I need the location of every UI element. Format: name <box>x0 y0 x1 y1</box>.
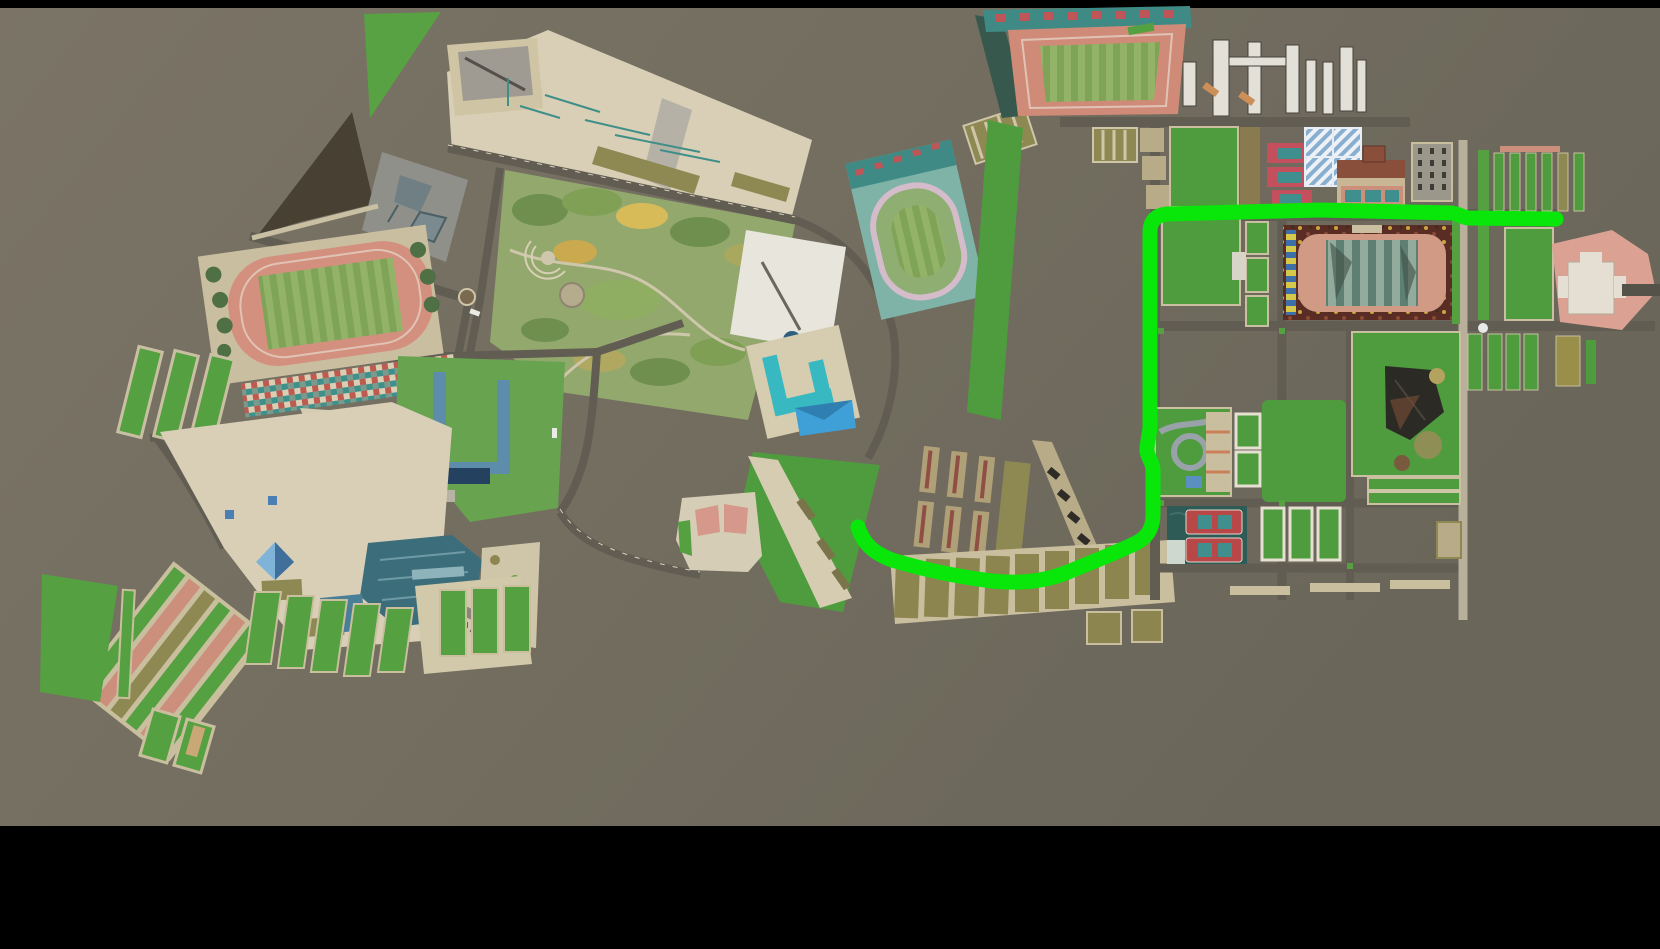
shore-pale <box>1167 540 1185 564</box>
court-white-border <box>1318 508 1340 560</box>
lawn-strip-se <box>1506 334 1520 390</box>
lawn-strip-se <box>1488 334 1502 390</box>
tan-block <box>1142 156 1166 180</box>
park-amphitheater <box>541 251 555 265</box>
arch-building-pillar <box>497 380 510 472</box>
park-canopy <box>562 188 622 216</box>
red-court-key <box>1218 543 1232 557</box>
shrub-dot <box>1279 500 1285 506</box>
lawn-small <box>1246 296 1268 326</box>
stadium-north-field <box>1040 42 1160 102</box>
great-lawn-east <box>1262 400 1346 502</box>
hall-front-court-teal <box>1365 190 1381 202</box>
plaza-vent <box>225 510 234 519</box>
field-plot <box>472 588 498 654</box>
field-plot <box>440 590 466 656</box>
tan-block <box>1146 185 1170 209</box>
round-tree <box>1414 431 1442 459</box>
lawn-strip-se <box>1468 334 1482 390</box>
garden-shrub <box>490 555 500 565</box>
hedge-column <box>1478 150 1489 320</box>
garden-grid-ne <box>1494 153 1504 211</box>
garden-plaza-pond <box>1186 476 1202 488</box>
basketball-inner <box>1277 172 1301 183</box>
garden-plot-low <box>1132 610 1162 642</box>
dorm-slab <box>1306 60 1316 112</box>
red-court <box>1186 510 1242 534</box>
park-canopy <box>553 240 597 264</box>
white-car <box>552 428 557 438</box>
garden-row <box>954 558 980 617</box>
dorm-slab <box>1213 40 1229 116</box>
garden-grid-ne <box>1542 153 1552 211</box>
plaza-vent <box>268 496 277 505</box>
gate-building <box>1568 262 1614 314</box>
gateball-green <box>678 520 692 556</box>
park-canopy <box>521 318 569 342</box>
garden-grid-ne <box>1558 153 1568 211</box>
stadium-east-checker <box>1286 230 1296 315</box>
basketball-inner <box>1280 194 1302 203</box>
gateball-pad-pink <box>695 505 720 536</box>
dorm-slab <box>1183 62 1196 106</box>
round-tree <box>1394 455 1410 471</box>
red-court <box>1186 538 1242 562</box>
dorm-slab <box>1340 47 1353 111</box>
dorm-slab <box>1323 62 1333 114</box>
lawn-block <box>1162 215 1240 305</box>
park-canopy <box>630 358 690 386</box>
brown-roof-chimney <box>1363 146 1385 162</box>
garden-accent-salmon <box>1500 146 1560 152</box>
shrub-dot <box>1158 328 1164 334</box>
field-plot <box>504 586 530 652</box>
sidewalk-strip <box>1310 583 1380 592</box>
tan-block-south <box>1437 522 1461 558</box>
park-canopy <box>616 203 668 229</box>
gate-building-tab <box>1580 252 1602 264</box>
gate-road-slot <box>1622 284 1660 296</box>
shrub-dot <box>1347 563 1353 569</box>
red-court-key <box>1198 543 1212 557</box>
intersection-sphere <box>1478 323 1488 333</box>
garden-grid-ne <box>1574 153 1584 211</box>
brown-roof-band <box>1337 160 1405 178</box>
lawn-strip-se <box>1524 334 1538 390</box>
map-viewport[interactable] <box>0 0 1660 949</box>
park-mound <box>560 283 584 307</box>
dorm-bridge <box>1229 57 1286 66</box>
garden-plot-low <box>1087 612 1121 644</box>
gate-lawn-west <box>1505 228 1553 320</box>
hall-front-court-teal <box>1345 190 1361 202</box>
round-tree <box>1429 368 1445 384</box>
park-canopy <box>690 338 746 366</box>
court-white-border <box>1236 414 1260 448</box>
lawn-strip-se <box>1586 340 1596 384</box>
court-white-border <box>1290 508 1312 560</box>
game-viewport <box>0 0 1660 949</box>
sidewalk-strip <box>1230 586 1290 595</box>
court-white-border <box>1262 508 1284 560</box>
red-court-key <box>1198 515 1212 529</box>
gate-building-wing <box>1558 276 1568 298</box>
field-east-dirt <box>1240 127 1260 207</box>
court-white-border <box>1236 452 1260 486</box>
dorm-slab <box>1357 60 1366 112</box>
dorm-slab <box>1286 45 1299 113</box>
shrub-dot <box>1279 328 1285 334</box>
lawn-small <box>1246 258 1268 292</box>
lawn-connector <box>1232 252 1246 280</box>
garden-grid-ne <box>1526 153 1536 211</box>
lawn-small <box>1246 222 1268 254</box>
field-east-a <box>1170 127 1238 207</box>
park-canopy <box>512 194 568 226</box>
park-canopy <box>670 217 730 247</box>
stadium-east-gate-notch <box>1352 225 1382 233</box>
garden-grid-ne <box>1510 153 1520 211</box>
basketball-inner <box>1277 148 1301 159</box>
sidewalk-strip <box>1390 580 1450 589</box>
tan-block <box>1140 128 1164 152</box>
hedge-column <box>1452 218 1460 324</box>
map-shapes-layer <box>0 6 1660 826</box>
gateball-pad-pink <box>724 504 748 534</box>
olive-plot-se <box>1556 336 1580 386</box>
roundabout <box>459 289 475 305</box>
hall-front-court-teal <box>1385 190 1399 202</box>
red-court-key <box>1218 515 1232 529</box>
